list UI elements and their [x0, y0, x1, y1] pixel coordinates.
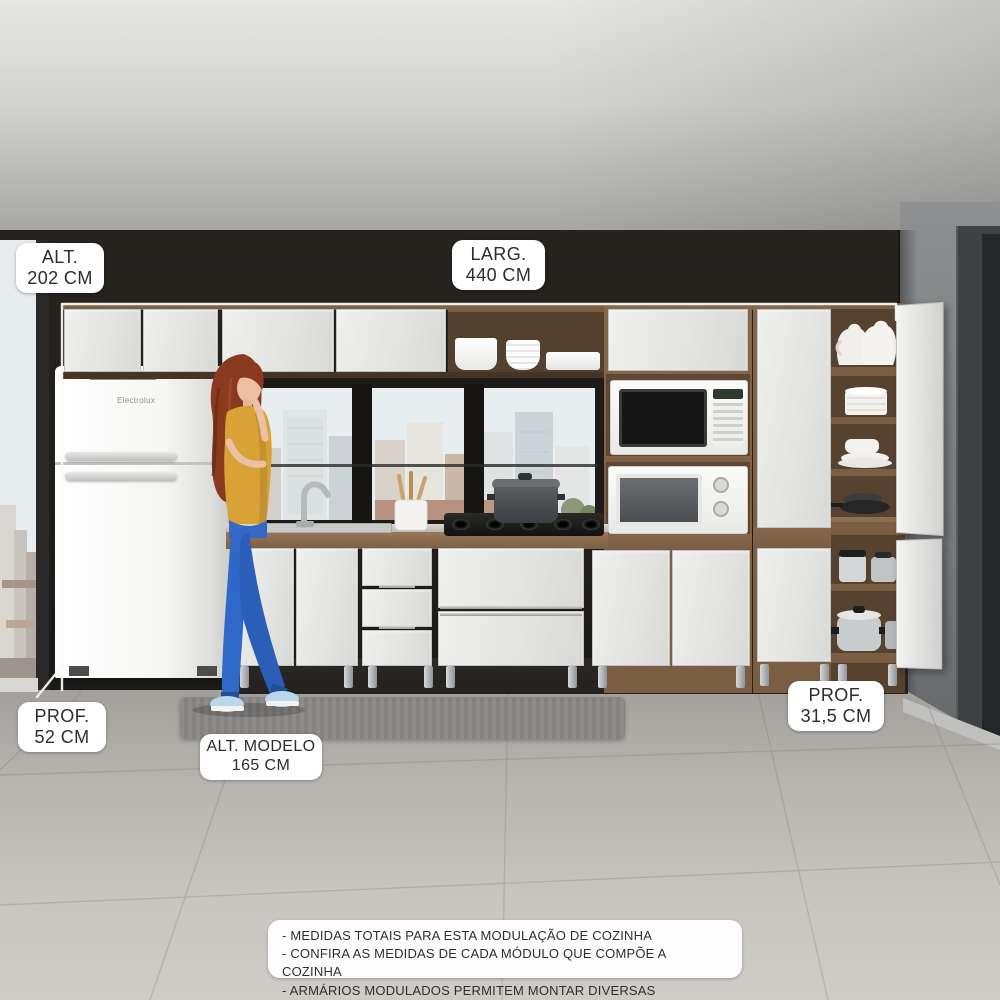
door-leaf	[982, 234, 1000, 742]
microwave-display	[713, 389, 743, 399]
microwave-window	[619, 389, 707, 447]
label-line: PROF.	[24, 706, 100, 727]
shelf-tower	[831, 303, 905, 693]
drawer-handle	[440, 606, 582, 609]
drawer-handle	[379, 626, 415, 629]
tall-cabinet-upper-door	[757, 309, 831, 528]
pot-handle	[487, 494, 495, 500]
fridge-brand: Electrolux	[117, 396, 155, 405]
open-door-upper	[896, 302, 944, 536]
note-line: - MEDIDAS TOTAIS PARA ESTA MODULAÇÃO DE …	[282, 927, 728, 945]
burner	[582, 519, 600, 530]
label-line: ALT. MODELO	[206, 738, 316, 757]
cabinet-leg	[568, 666, 577, 688]
woman	[183, 348, 313, 720]
fridge-handle	[65, 472, 177, 481]
cabinet-leg	[446, 666, 455, 688]
fridge-foot	[69, 666, 89, 676]
dish-stack	[546, 352, 600, 370]
left-window-sill	[0, 678, 38, 692]
label-alt-modelo: ALT. MODELO 165 CM	[200, 734, 322, 780]
upper-door	[64, 309, 141, 372]
pot	[494, 487, 558, 523]
note-line: - CONFIRA AS MEDIDAS DE CADA MÓDULO QUE …	[282, 945, 728, 981]
notes-box: - MEDIDAS TOTAIS PARA ESTA MODULAÇÃO DE …	[268, 920, 742, 978]
tower-upper-door	[608, 309, 748, 371]
cabinet-leg	[760, 664, 769, 686]
tower-base-door	[672, 550, 750, 666]
window-mullion	[352, 384, 372, 526]
label-line: 31,5 CM	[794, 706, 878, 727]
drawer	[362, 548, 432, 586]
open-shelf-niche	[448, 306, 607, 380]
cabinet-leg	[344, 666, 353, 688]
microwave-bottom	[608, 466, 748, 534]
label-prof-fridge: PROF. 52 CM	[18, 702, 106, 752]
cabinet-leg	[424, 666, 433, 688]
microwave-keypad	[713, 403, 743, 445]
utensil-holder	[390, 468, 432, 532]
label-line: PROF.	[794, 685, 878, 706]
microwave-knob	[713, 501, 729, 517]
pot-handle	[557, 494, 565, 500]
label-line: 165 CM	[206, 757, 316, 776]
label-line: ALT.	[22, 247, 98, 268]
wide-drawer	[438, 611, 584, 666]
label-line: 52 CM	[24, 727, 100, 748]
label-prof-cabinet: PROF. 31,5 CM	[788, 681, 884, 731]
freezer-handle	[65, 452, 177, 461]
window-mullion	[464, 384, 484, 526]
round-bowl	[506, 340, 540, 370]
kitchen-product-photo: Electrolux	[0, 0, 1000, 1000]
label-larg-total: LARG. 440 CM	[452, 240, 545, 290]
drawer-handle	[440, 613, 582, 616]
microwave-window	[616, 474, 702, 526]
microwave-knob	[713, 477, 729, 493]
burner	[452, 519, 470, 530]
left-window-frame	[36, 240, 49, 690]
wide-drawer	[438, 548, 584, 608]
label-line: 202 CM	[22, 268, 98, 289]
cabinet-leg	[368, 666, 377, 688]
open-door-lower	[896, 538, 942, 669]
cabinet-leg	[888, 664, 897, 686]
upper-door	[336, 309, 446, 372]
pot-lid-knob	[518, 473, 532, 480]
tower-base-door	[592, 550, 670, 666]
cabinet-leg	[736, 666, 745, 688]
tower-counter-band	[604, 534, 752, 550]
drawer	[362, 630, 432, 666]
label-alt-total: ALT. 202 CM	[16, 243, 104, 293]
square-bowl	[455, 338, 497, 370]
cabinet-leg	[598, 666, 607, 688]
ceiling-shadow	[0, 0, 1000, 232]
drawer	[362, 589, 432, 627]
drawer-handle	[379, 585, 415, 588]
tall-cabinet-lower-door	[757, 548, 831, 662]
microwave-top	[610, 380, 748, 455]
burner	[554, 519, 572, 530]
note-line: - ARMÁRIOS MODULADOS PERMITEM MONTAR DIV…	[282, 982, 728, 1000]
label-line: LARG.	[458, 244, 539, 265]
label-line: 440 CM	[458, 265, 539, 286]
